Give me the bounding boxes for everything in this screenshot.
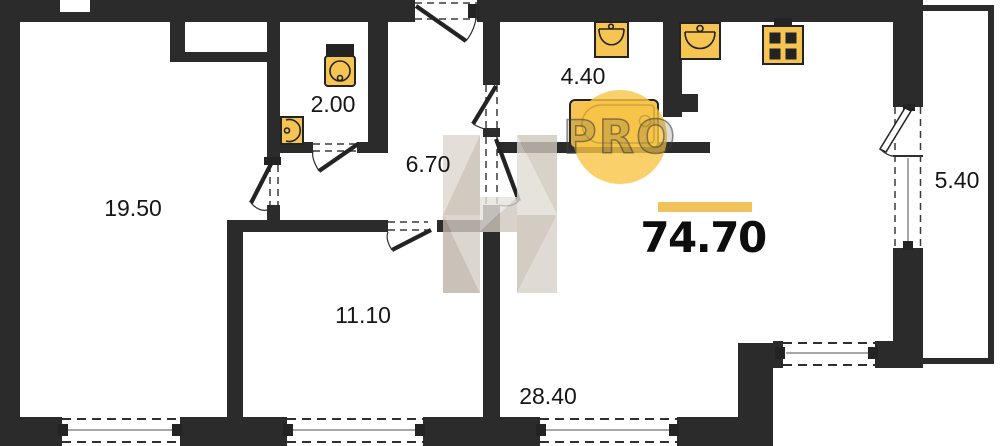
door-leaf	[251, 164, 271, 203]
room-label-bedroom: 11.10	[335, 302, 391, 328]
room-label-balcony: 5.40	[935, 167, 980, 193]
window-kitchen	[536, 417, 679, 446]
living-room-door	[251, 157, 281, 210]
wall-balcony-thin-bottom	[921, 358, 994, 364]
bedroom-door	[387, 222, 431, 250]
wall-top-right	[477, 0, 923, 22]
door-leaf	[319, 144, 358, 171]
floor-plan-drawing: PRO 74.70 19.50 2.00 6.70 4.40 11.10 28.…	[0, 0, 1000, 446]
wall-niche-bottom	[185, 52, 280, 62]
bathroom-door	[473, 85, 498, 130]
wall-balcony-thin-top	[921, 5, 994, 11]
wall-hall-kitchen-upper	[483, 22, 500, 85]
pro-logo-text: PRO	[563, 110, 677, 164]
wall-wc-right	[368, 22, 388, 153]
wall-hall-kitchen-lower	[483, 205, 500, 417]
entrance-door	[415, 0, 479, 41]
balcony-door	[880, 104, 915, 156]
door-leaf	[473, 86, 496, 124]
room-label-living-room: 19.50	[104, 195, 162, 221]
wall-bedroom-top-left	[227, 220, 388, 232]
toilet-icon	[325, 44, 355, 86]
total-area-block: 74.70	[640, 202, 766, 262]
stove-icon	[763, 18, 803, 64]
room-label-bathroom: 4.40	[561, 63, 606, 89]
fixtures	[281, 18, 803, 148]
window-step	[775, 341, 878, 368]
window-bedroom	[283, 417, 425, 446]
floor-plan: PRO 74.70 19.50 2.00 6.70 4.40 11.10 28.…	[0, 0, 1000, 446]
kitchen-sink-icon	[680, 23, 720, 59]
wall-balcony-separator-upper	[893, 0, 923, 107]
corner-sink-icon	[281, 117, 303, 144]
room-label-wc: 2.00	[311, 91, 356, 117]
wall-left	[0, 0, 20, 446]
wall-balcony-thin-right	[988, 5, 994, 364]
door-leaf	[392, 230, 431, 250]
wall-niche-side	[170, 22, 185, 62]
wall-bathroom-right-stub	[682, 94, 698, 112]
window-living-room	[58, 417, 182, 446]
wall-top-notch	[60, 0, 90, 12]
wall-balcony-separator-lower	[893, 248, 923, 368]
accent-bar	[658, 202, 752, 212]
wall-bedroom-left	[227, 222, 243, 417]
window-opening	[783, 341, 875, 368]
wc-door	[313, 144, 358, 171]
washbasin-icon	[595, 22, 628, 57]
room-label-kitchen-living: 28.40	[519, 383, 577, 409]
room-label-hallway: 6.70	[406, 151, 451, 177]
wall-wc-bottom-right	[357, 142, 388, 153]
total-area-value: 74.70	[640, 213, 766, 262]
wall-step-vertical	[738, 343, 773, 446]
